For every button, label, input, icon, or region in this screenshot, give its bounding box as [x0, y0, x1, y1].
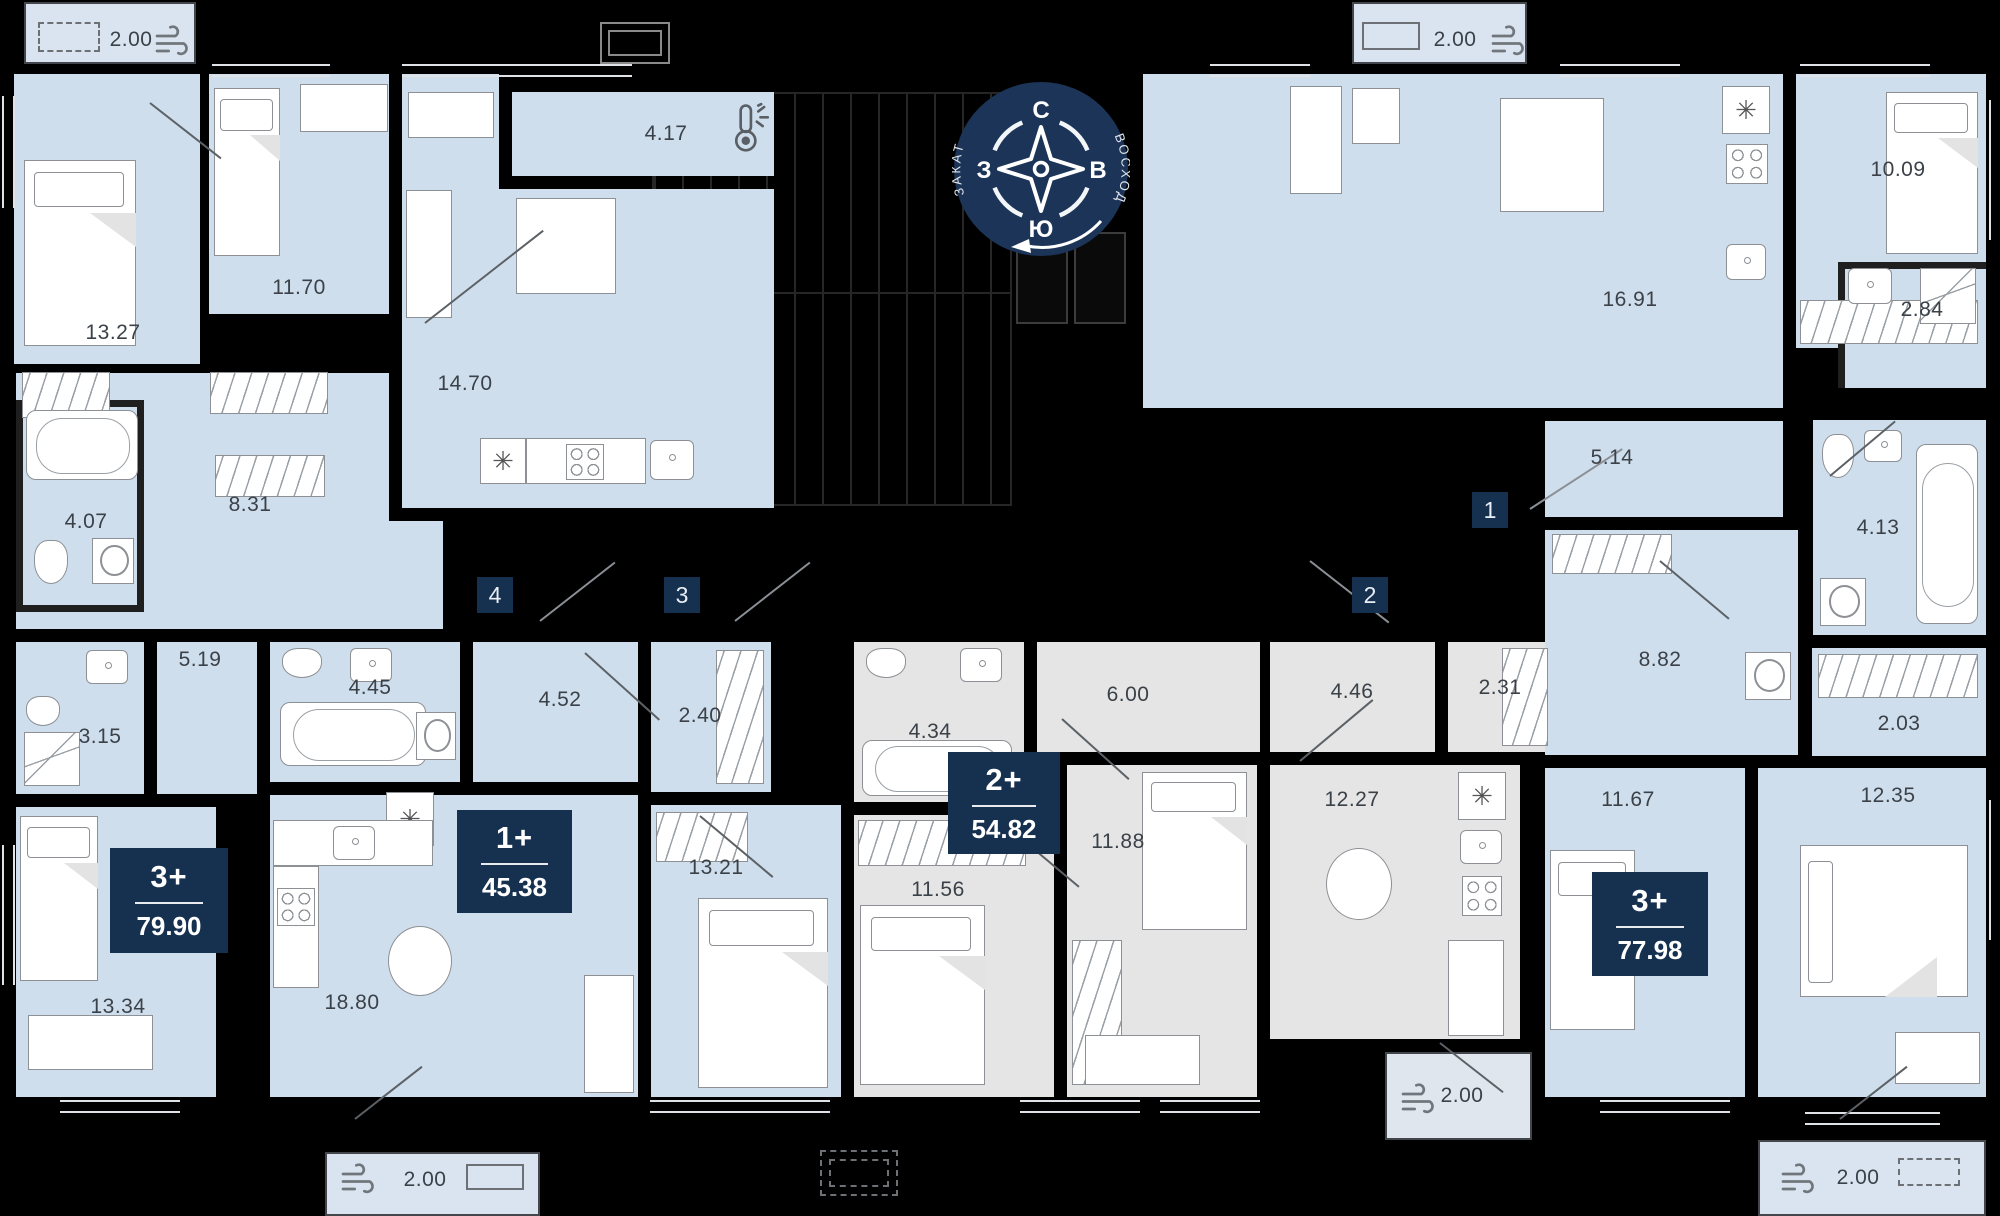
apartment-type: 3+ — [1631, 883, 1668, 919]
room-area-label: 4.07 — [65, 510, 108, 534]
balcony-hatch-apt1-top — [1362, 22, 1420, 50]
window — [1989, 800, 2000, 940]
room-area-label: 2.84 — [1901, 298, 1944, 322]
furniture-washer — [92, 538, 134, 584]
room-area-label: 11.67 — [1601, 788, 1655, 812]
room-area-label: 12.27 — [1324, 788, 1379, 812]
room-hallway-5-14 — [1545, 421, 1783, 517]
room-area-label: 4.52 — [539, 688, 582, 712]
furniture-shower — [24, 732, 80, 786]
furniture-sofa — [406, 190, 452, 318]
room-area-label: 13.34 — [90, 995, 145, 1019]
furniture-dining-table — [516, 198, 616, 294]
furniture-sofa — [584, 975, 634, 1093]
furniture-stove — [1726, 144, 1768, 184]
thermometer-icon — [726, 102, 770, 156]
balcony-hatch-apt1-bottom — [1898, 1158, 1960, 1186]
furniture-toilet — [34, 540, 68, 584]
furniture-bed — [20, 816, 98, 981]
apartment-area: 79.90 — [136, 911, 201, 942]
furniture-sofa — [1448, 940, 1504, 1036]
window — [1989, 100, 2000, 240]
window — [650, 1100, 830, 1113]
apartment-type: 2+ — [985, 762, 1022, 798]
floor-plan: 2.00 13.27 11.70 4.17 14.70 8.31 4.07 5.… — [0, 0, 2000, 1216]
apartment-area: 77.98 — [1617, 935, 1682, 966]
apartment-badge-apt2[interactable]: 2+ 54.82 — [948, 752, 1060, 854]
compass-rose: С В Ю З ЗАКАТ ВОСХОД — [952, 80, 1130, 258]
room-area-label: 11.56 — [911, 878, 965, 902]
room-area-label: 4.17 — [645, 122, 688, 146]
door-line — [734, 562, 810, 622]
furniture-armchair — [1352, 88, 1400, 144]
compass-west: З — [976, 157, 991, 184]
room-area-label: 8.82 — [1639, 648, 1682, 672]
roof-shaft — [600, 22, 670, 64]
unit-badge-3[interactable]: 3 — [664, 577, 700, 613]
window — [2, 96, 15, 208]
room-area-label: 8.31 — [229, 493, 272, 517]
room-hallway-4-52 — [473, 642, 638, 782]
room-area-label: 2.03 — [1878, 712, 1921, 736]
window — [1800, 64, 1930, 77]
furniture-fridge: ✳ — [480, 438, 526, 484]
apartment-type: 1+ — [496, 820, 533, 856]
room-area-label: 16.91 — [1602, 288, 1657, 312]
window — [1020, 1100, 1140, 1113]
wind-icon — [152, 24, 192, 58]
room-area-label: 11.70 — [272, 276, 326, 300]
window — [1600, 1100, 1730, 1113]
furniture-bed — [24, 160, 136, 346]
furniture-sink — [86, 650, 128, 684]
furniture-wardrobe — [1552, 534, 1672, 574]
room-hallway-8-31b — [389, 521, 443, 629]
unit-badge-4[interactable]: 4 — [477, 577, 513, 613]
furniture-wardrobe — [210, 372, 328, 414]
furniture-bathtub — [1916, 444, 1978, 624]
apartment-badge-apt1[interactable]: 3+ 77.98 — [1592, 872, 1708, 976]
furniture-toilet — [866, 648, 906, 678]
furniture-bed — [1800, 845, 1968, 997]
furniture-sink — [1726, 244, 1766, 280]
furniture-wardrobe — [1818, 654, 1978, 698]
wind-icon — [338, 1162, 378, 1196]
unit-badge-2[interactable]: 2 — [1352, 577, 1388, 613]
balcony-area-label: 2.00 — [110, 28, 153, 52]
room-area-label: 14.70 — [437, 372, 492, 396]
window — [2, 845, 15, 985]
furniture-sofa — [1290, 86, 1342, 194]
furniture-washer — [1745, 652, 1791, 700]
compass-north: С — [1032, 97, 1049, 124]
furniture-sink — [1848, 268, 1892, 304]
window — [1560, 64, 1680, 77]
furniture-bed — [860, 905, 985, 1085]
window — [1210, 64, 1310, 77]
furniture-fridge: ✳ — [1458, 772, 1506, 820]
room-area-label: 13.21 — [688, 856, 743, 880]
balcony-area-label: 2.00 — [1441, 1084, 1484, 1108]
apartment-badge-apt4[interactable]: 3+ 79.90 — [110, 848, 228, 953]
room-area-label: 10.09 — [1870, 158, 1925, 182]
furniture-washer — [1820, 578, 1866, 626]
room-area-label: 13.27 — [85, 321, 140, 345]
furniture-bed — [1142, 772, 1247, 930]
furniture-desk — [28, 1015, 153, 1070]
furniture-kitchen-counter — [273, 866, 319, 988]
furniture-desk — [408, 92, 494, 138]
apartment-area: 54.82 — [971, 814, 1036, 845]
furniture-wardrobe — [215, 455, 325, 497]
furniture-bed — [214, 88, 280, 256]
balcony-area-label: 2.00 — [404, 1168, 447, 1192]
apartment-badge-apt3[interactable]: 1+ 45.38 — [457, 810, 572, 913]
room-area-label: 12.35 — [1860, 784, 1915, 808]
furniture-sink — [1864, 430, 1902, 462]
balcony-hatch-apt3 — [466, 1164, 524, 1190]
furniture-sink — [960, 648, 1002, 682]
furniture-sink — [333, 826, 375, 860]
furniture-toilet — [1822, 434, 1854, 478]
furniture-fridge: ✳ — [1722, 86, 1770, 134]
room-area-label: 5.19 — [179, 648, 222, 672]
room-area-label: 2.31 — [1479, 676, 1522, 700]
compass-south: Ю — [1029, 216, 1054, 243]
room-area-label: 18.80 — [324, 991, 379, 1015]
balcony-hatch-apt4 — [38, 22, 100, 52]
furniture-washer — [416, 712, 456, 760]
balcony-area-label: 2.00 — [1434, 28, 1477, 52]
furniture-sink — [1460, 830, 1502, 864]
wind-icon — [1398, 1082, 1438, 1116]
wind-icon — [1488, 24, 1528, 58]
furniture-stove — [566, 444, 604, 480]
room-area-label: 3.15 — [79, 725, 122, 749]
furniture-bathtub — [280, 702, 426, 766]
furniture-wardrobe — [716, 650, 764, 784]
room-area-label: 4.34 — [909, 720, 952, 744]
room-area-label: 4.45 — [349, 676, 392, 700]
furniture-round-table — [388, 926, 452, 996]
window — [402, 64, 632, 77]
room-area-label: 2.40 — [679, 704, 722, 728]
balcony-area-label: 2.00 — [1837, 1166, 1880, 1190]
compass-east: В — [1089, 157, 1106, 184]
window — [1160, 1100, 1260, 1113]
furniture-desk — [1085, 1035, 1200, 1085]
door-line — [539, 562, 615, 622]
furniture-desk — [1895, 1032, 1980, 1084]
furniture-bathtub — [26, 410, 138, 480]
entrance-marker — [820, 1150, 898, 1196]
furniture-toilet — [26, 696, 60, 726]
apartment-area: 45.38 — [482, 872, 547, 903]
furniture-toilet — [282, 648, 322, 678]
furniture-stove — [1462, 876, 1502, 916]
room-area-label: 5.14 — [1591, 446, 1634, 470]
room-area-label: 4.13 — [1857, 516, 1900, 540]
room-area-label: 11.88 — [1091, 830, 1145, 854]
wind-icon — [1778, 1162, 1818, 1196]
furniture-stove — [277, 888, 315, 926]
apartment-type: 3+ — [150, 859, 187, 895]
room-area-label: 6.00 — [1107, 683, 1150, 707]
room-area-label: 4.46 — [1331, 680, 1374, 704]
furniture-bed — [698, 898, 828, 1088]
unit-badge-1[interactable]: 1 — [1472, 492, 1508, 528]
window — [1805, 1112, 1940, 1125]
furniture-sink — [650, 440, 694, 480]
window — [212, 64, 330, 77]
furniture-desk — [300, 84, 388, 132]
furniture-dining-table — [1500, 98, 1604, 212]
room-kitchen-living-16-91 — [1143, 74, 1783, 408]
window — [60, 1100, 180, 1113]
furniture-round-table — [1326, 848, 1392, 920]
